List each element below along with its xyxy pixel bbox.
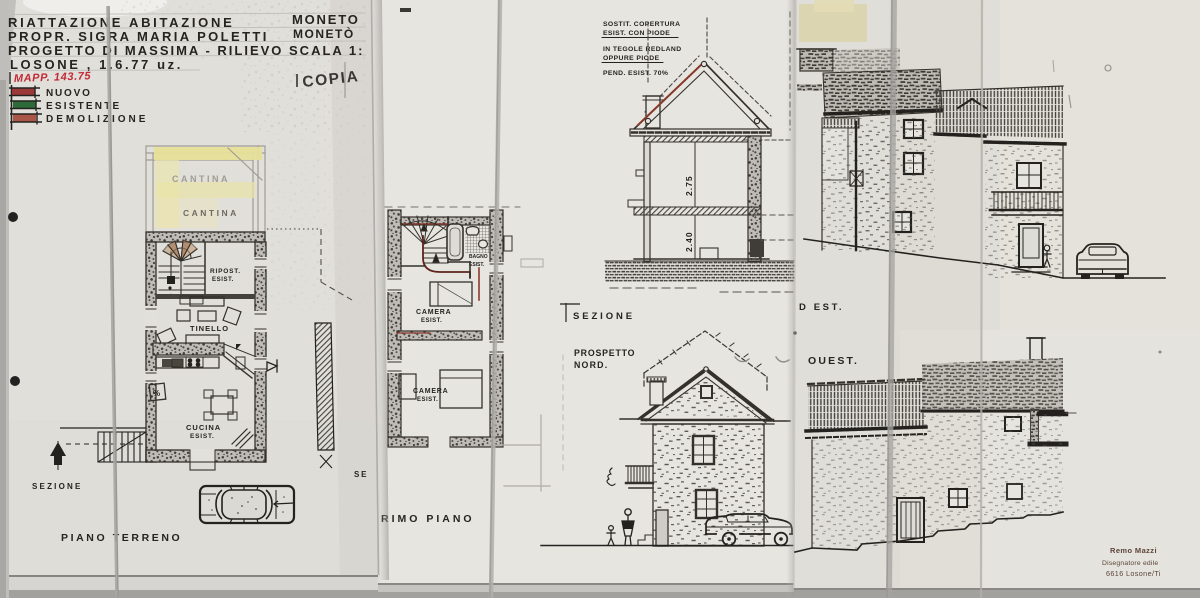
svg-text:CANTINA: CANTINA	[183, 208, 239, 218]
svg-text:ESIST.: ESIST.	[190, 433, 215, 440]
svg-text:6616 Losone/Ti: 6616 Losone/Ti	[1106, 569, 1161, 578]
svg-text:CUCINA: CUCINA	[186, 423, 221, 432]
svg-text:BAGNO: BAGNO	[469, 254, 488, 260]
svg-text:RIATTAZIONE ABITAZIONE: RIATTAZIONE ABITAZIONE	[8, 15, 234, 30]
svg-text:MONETÒ: MONETÒ	[293, 26, 355, 41]
svg-text:CANTINA: CANTINA	[172, 174, 230, 184]
svg-text:MONETO: MONETO	[292, 12, 360, 27]
svg-text:PROPR. SIGRA MARIA POLETTI: PROPR. SIGRA MARIA POLETTI	[8, 29, 269, 44]
svg-text:Remo Mazzi: Remo Mazzi	[1110, 546, 1157, 555]
svg-text:CAMERA: CAMERA	[416, 309, 452, 316]
svg-text:NORD.: NORD.	[574, 360, 608, 370]
svg-text:ESIST.: ESIST.	[421, 318, 442, 324]
svg-text:OUEST.: OUEST.	[808, 355, 859, 367]
svg-text:LOSONE , 1.6.77 uz.: LOSONE , 1.6.77 uz.	[10, 57, 183, 72]
svg-text:SOSTIT. COPERTURA: SOSTIT. COPERTURA	[603, 21, 680, 28]
svg-text:ESIST.: ESIST.	[469, 262, 485, 268]
svg-text:PIANO TERRENO: PIANO TERRENO	[61, 532, 182, 544]
svg-text:PROGETTO DI MASSIMA - RILIEVO: PROGETTO DI MASSIMA - RILIEVO SCALA 1:	[8, 43, 364, 58]
svg-text:OPPURE PIODE: OPPURE PIODE	[603, 55, 660, 62]
svg-text:PEND. ESIST. 70%: PEND. ESIST. 70%	[603, 70, 668, 77]
svg-text:2.40: 2.40	[684, 231, 694, 252]
svg-text:RIPOST.: RIPOST.	[210, 268, 241, 275]
svg-text:SEZIONE: SEZIONE	[573, 311, 635, 322]
svg-text:PROSPETTO: PROSPETTO	[574, 348, 635, 358]
svg-text:TINELLO: TINELLO	[190, 324, 229, 333]
svg-text:SEZIONE: SEZIONE	[32, 482, 83, 491]
svg-text:ESIST.: ESIST.	[212, 277, 234, 283]
svg-text:CAMERA: CAMERA	[413, 388, 449, 395]
svg-text:2.75: 2.75	[684, 175, 694, 196]
svg-text:NUOVO: NUOVO	[46, 88, 92, 99]
svg-text:DEMOLIZIONE: DEMOLIZIONE	[46, 114, 148, 125]
svg-text:IN TEGOLE REDLAND: IN TEGOLE REDLAND	[603, 46, 682, 53]
svg-text:%: %	[153, 389, 160, 398]
svg-text:D EST.: D EST.	[799, 302, 844, 313]
svg-text:SE: SE	[354, 470, 368, 479]
svg-text:ESIST. CON PIODE: ESIST. CON PIODE	[603, 30, 670, 37]
svg-text:Disegnatore edile: Disegnatore edile	[1102, 560, 1158, 567]
svg-text:ESIST.: ESIST.	[417, 397, 438, 403]
